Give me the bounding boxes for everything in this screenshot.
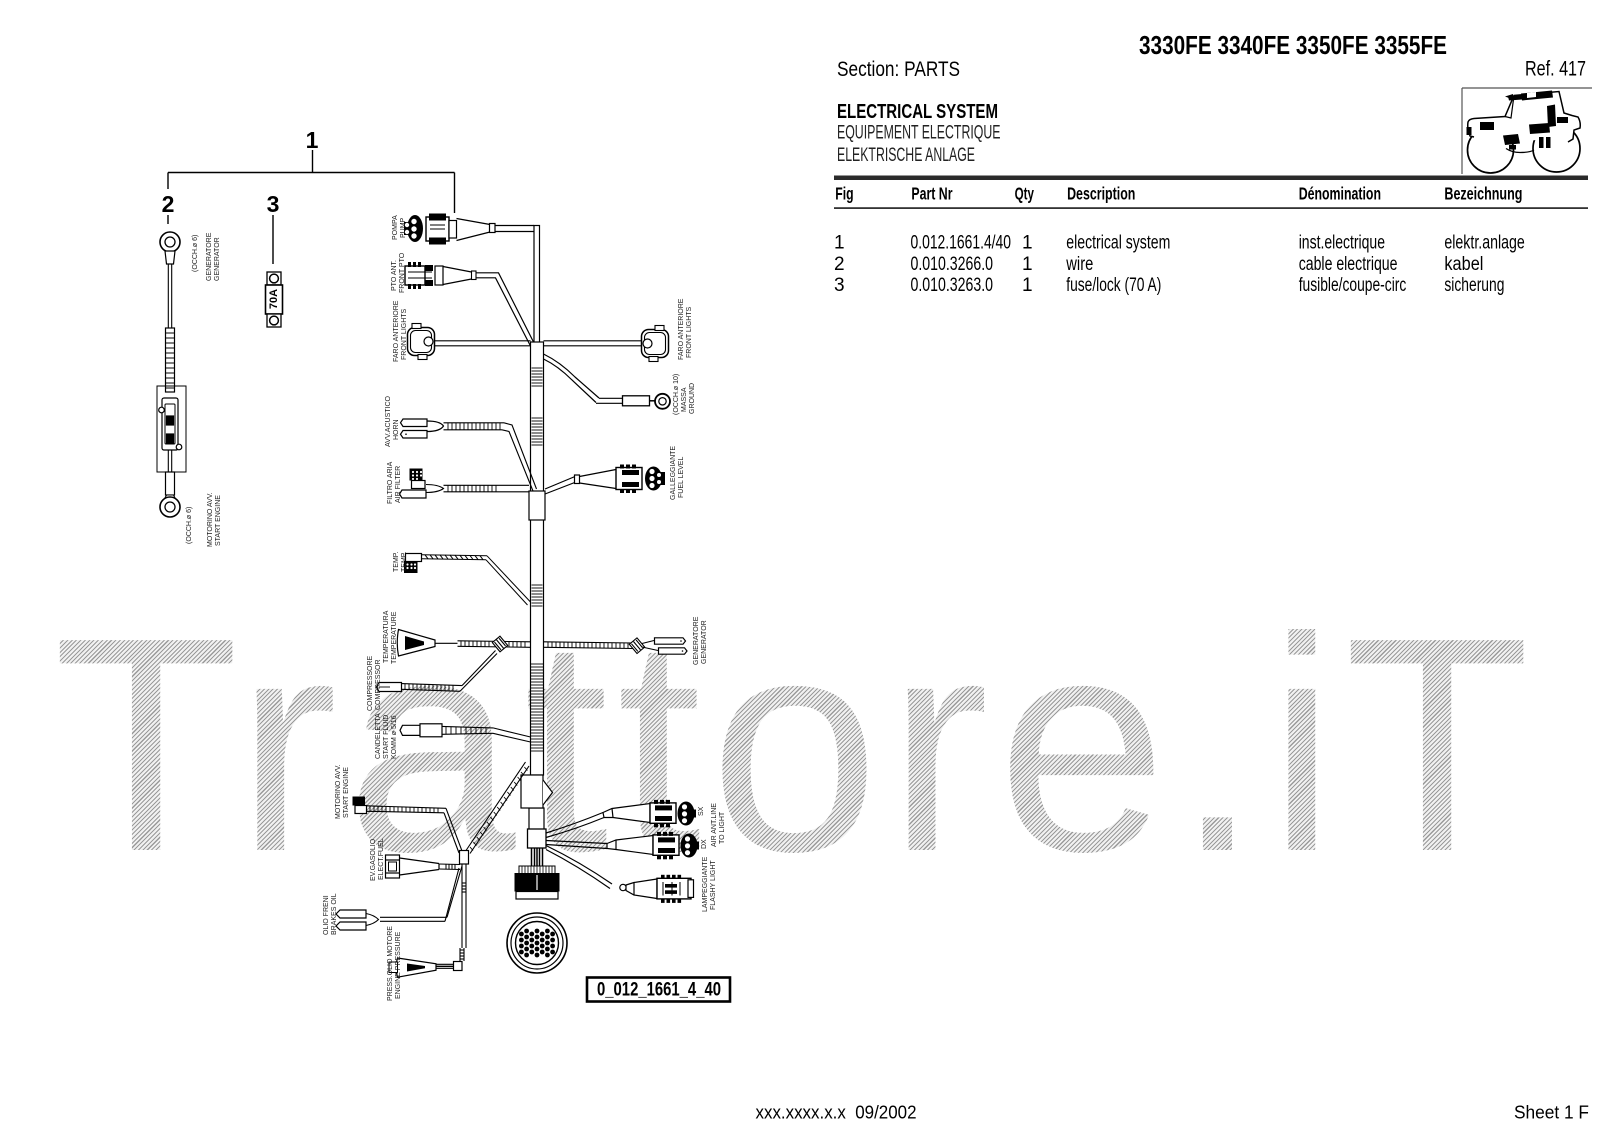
svg-text:FARO ANTERIORE: FARO ANTERIORE xyxy=(393,300,400,362)
svg-text:1: 1 xyxy=(1022,275,1033,296)
svg-text:Sheet 1 F: Sheet 1 F xyxy=(1514,1103,1589,1123)
svg-text:BRAKES OIL: BRAKES OIL xyxy=(331,893,338,935)
svg-text:xxx.xxxx.x.x 09/2002: xxx.xxxx.x.x 09/2002 xyxy=(756,1103,917,1123)
svg-text:GROUND: GROUND xyxy=(689,383,696,414)
svg-text:2: 2 xyxy=(162,191,175,217)
svg-text:MASSA: MASSA xyxy=(681,387,688,412)
svg-text:0.010.3266.0: 0.010.3266.0 xyxy=(911,254,994,275)
svg-text:fusible/coupe-circ: fusible/coupe-circ xyxy=(1299,275,1407,296)
svg-text:GENERATORE: GENERATORE xyxy=(206,232,213,281)
svg-text:sicherung: sicherung xyxy=(1444,275,1504,296)
svg-text:GENERATORE: GENERATORE xyxy=(693,616,700,665)
svg-text:0_012_1661_4_40: 0_012_1661_4_40 xyxy=(597,980,721,1001)
svg-text:70A: 70A xyxy=(268,289,280,309)
svg-text:MOTORINO AVV.: MOTORINO AVV. xyxy=(335,764,342,819)
svg-text:Description: Description xyxy=(1067,183,1135,203)
svg-text:DX: DX xyxy=(701,839,708,849)
svg-text:GENERATOR: GENERATOR xyxy=(701,620,708,664)
svg-text:FRONT LIGHTS: FRONT LIGHTS xyxy=(686,306,693,358)
svg-text:cable electrique: cable electrique xyxy=(1299,254,1398,275)
svg-text:electrical system: electrical system xyxy=(1066,233,1170,254)
svg-text:START ENGINE: START ENGINE xyxy=(343,767,350,818)
svg-text:Part Nr: Part Nr xyxy=(911,183,952,203)
svg-text:FUEL LEVEL: FUEL LEVEL xyxy=(678,457,685,498)
svg-text:Ref. 417: Ref. 417 xyxy=(1525,58,1586,81)
svg-text:1: 1 xyxy=(834,233,845,254)
svg-text:3330FE 3340FE 3350FE 3355FE: 3330FE 3340FE 3350FE 3355FE xyxy=(1139,30,1447,60)
svg-text:TEMPERATURA: TEMPERATURA xyxy=(383,610,390,663)
svg-text:ELEKTRISCHE ANLAGE: ELEKTRISCHE ANLAGE xyxy=(837,145,975,166)
svg-text:FRONT LIGHTS: FRONT LIGHTS xyxy=(401,308,408,360)
svg-text:AIR FILTER: AIR FILTER xyxy=(395,466,402,503)
svg-text:ENGINE PRESSURE: ENGINE PRESSURE xyxy=(395,931,402,999)
svg-text:AVV.ACUSTICO: AVV.ACUSTICO xyxy=(385,395,392,447)
svg-text:1: 1 xyxy=(1022,233,1033,254)
svg-text:EV.GASOLIO: EV.GASOLIO xyxy=(370,838,377,881)
svg-text:TEMP.: TEMP. xyxy=(401,551,408,572)
svg-text:PUMP: PUMP xyxy=(400,217,407,238)
svg-text:TO LIGHT: TO LIGHT xyxy=(719,811,726,844)
svg-text:Fig: Fig xyxy=(835,183,853,203)
svg-text:HORN: HORN xyxy=(393,419,400,440)
svg-text:FLASHY LIGHT: FLASHY LIGHT xyxy=(710,860,717,910)
svg-text:FRONT PTO: FRONT PTO xyxy=(399,252,406,293)
svg-text:2: 2 xyxy=(834,254,845,275)
svg-text:Bezeichnung: Bezeichnung xyxy=(1444,183,1522,203)
svg-text:elektr.anlage: elektr.anlage xyxy=(1444,233,1524,254)
svg-text:GALLEGGIANTE: GALLEGGIANTE xyxy=(670,446,677,500)
svg-text:Dénomination: Dénomination xyxy=(1299,183,1381,203)
svg-text:KOMM ø 5/16: KOMM ø 5/16 xyxy=(391,715,398,759)
svg-text:Section: PARTS: Section: PARTS xyxy=(837,58,960,81)
svg-text:START FLUID: START FLUID xyxy=(383,715,390,759)
svg-text:START ENGINE: START ENGINE xyxy=(215,495,222,546)
svg-text:SX: SX xyxy=(698,806,705,816)
svg-text:Qty: Qty xyxy=(1015,183,1034,203)
svg-text:kabel: kabel xyxy=(1444,254,1483,275)
svg-text:COMPRESSOR: COMPRESSOR xyxy=(375,659,382,710)
svg-text:fuse/lock (70 A): fuse/lock (70 A) xyxy=(1066,275,1161,296)
svg-text:inst.electrique: inst.electrique xyxy=(1299,233,1385,254)
svg-text:TEMP.: TEMP. xyxy=(393,551,400,572)
svg-text:0.010.3263.0: 0.010.3263.0 xyxy=(911,275,994,296)
svg-text:1: 1 xyxy=(1022,254,1033,275)
svg-text:ELECTRICAL SYSTEM: ELECTRICAL SYSTEM xyxy=(837,101,998,123)
svg-text:(OCCH.ø 10): (OCCH.ø 10) xyxy=(673,374,680,415)
svg-text:3: 3 xyxy=(267,191,280,217)
svg-text:FILTRO ARIA: FILTRO ARIA xyxy=(387,461,394,504)
svg-text:POMPA: POMPA xyxy=(392,215,399,240)
svg-text:AIR ANT.LINE: AIR ANT.LINE xyxy=(711,803,718,847)
svg-text:MOTORINO AVV.: MOTORINO AVV. xyxy=(207,492,214,547)
svg-text:OLIO FRENI: OLIO FRENI xyxy=(323,895,330,935)
svg-text:PRESS.OLIO MOTORE: PRESS.OLIO MOTORE xyxy=(387,926,394,1001)
svg-text:3: 3 xyxy=(834,275,845,296)
svg-text:PTO ANT.: PTO ANT. xyxy=(391,260,398,291)
svg-text:(OCCH.ø 6): (OCCH.ø 6) xyxy=(186,507,193,544)
svg-text:LAMPEGGIANTE: LAMPEGGIANTE xyxy=(702,856,709,912)
svg-text:CANDELETTA: CANDELETTA xyxy=(375,713,382,759)
svg-text:(OCCH.ø 6): (OCCH.ø 6) xyxy=(192,235,199,272)
svg-text:COMPRESSORE: COMPRESSORE xyxy=(367,655,374,711)
svg-text:EQUIPEMENT ELECTRIQUE: EQUIPEMENT ELECTRIQUE xyxy=(837,123,1001,144)
svg-text:TEMPERATURE: TEMPERATURE xyxy=(391,611,398,664)
svg-text:FARO ANTERIORE: FARO ANTERIORE xyxy=(678,298,685,360)
svg-text:wire: wire xyxy=(1066,254,1094,275)
svg-text:GENERATOR: GENERATOR xyxy=(214,237,221,281)
svg-text:0.012.1661.4/40: 0.012.1661.4/40 xyxy=(911,233,1012,254)
svg-text:ELECT.FUEL: ELECT.FUEL xyxy=(378,838,385,880)
svg-text:1: 1 xyxy=(306,127,319,153)
